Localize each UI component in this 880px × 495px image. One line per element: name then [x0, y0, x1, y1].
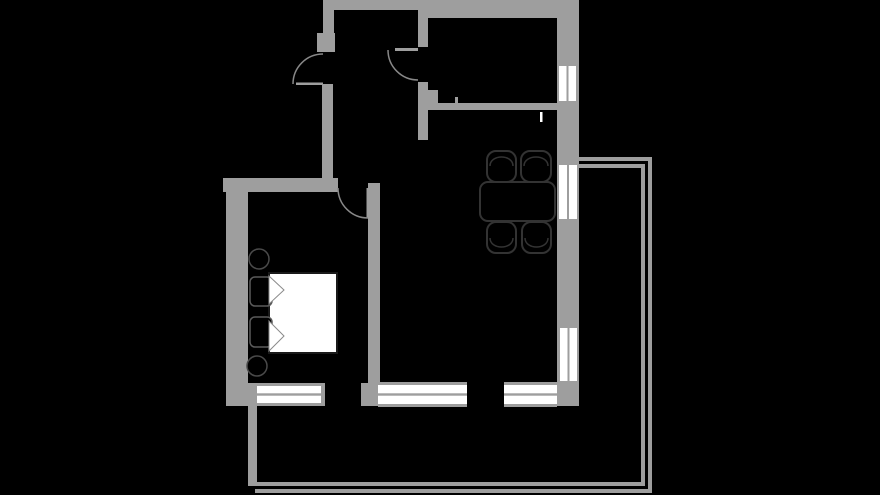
bottom-wall-left-corner	[226, 383, 257, 406]
balcony-rail-right-inner	[641, 164, 645, 486]
window-bottom-bedroom-frame-top	[257, 383, 321, 386]
window-bottom-living-1-mullion	[378, 393, 467, 395]
dining-chair-1	[487, 151, 516, 182]
top-wall-right-thick	[425, 8, 578, 18]
entry-door-leaf	[296, 83, 323, 86]
balcony-rail-top-outer	[579, 157, 652, 161]
kitchen-wall-tick	[455, 97, 458, 103]
balcony-rail-bottom-outer	[255, 489, 652, 493]
dining-chair-4	[522, 222, 551, 253]
window-bottom-living-2-mullion	[504, 393, 557, 395]
bedside-stool-2	[247, 356, 267, 376]
bedroom-door-leaf	[367, 188, 370, 218]
kitchen-wall-pier	[426, 90, 438, 110]
dining-table	[480, 182, 555, 221]
hall-left-wall	[322, 84, 333, 192]
window-right-middle-mullion	[567, 165, 569, 219]
bedroom-left-wall	[226, 178, 248, 406]
kitchen-partition-wall	[438, 103, 558, 110]
balcony-rail-right-outer	[648, 157, 652, 493]
bedside-stool-1	[249, 249, 269, 269]
entry-door-pier	[317, 33, 335, 52]
floorplan-canvas	[0, 0, 880, 495]
chair-seat	[521, 151, 551, 182]
dining-chair-2	[521, 151, 551, 182]
window-bottom-living-1-frame-top	[378, 382, 467, 385]
balcony-left-bar	[248, 406, 257, 484]
window-bottom-living-1	[378, 382, 467, 407]
window-right-bottom-mullion	[568, 328, 570, 381]
kitchen-door-tick	[540, 112, 543, 122]
window-bottom-living-2	[504, 382, 557, 407]
bedroom-right-wall	[368, 183, 380, 383]
window-bottom-living-2-frame-bottom	[504, 404, 557, 407]
chair-seat	[487, 151, 516, 182]
window-bottom-bedroom-frame-bottom	[257, 403, 321, 406]
hall-room-door-leaf	[395, 48, 418, 51]
bedroom-window-end-cap	[321, 383, 325, 406]
window-bottom-living-2-frame-top	[504, 382, 557, 385]
bottom-wall-pier	[361, 383, 380, 406]
window-right-top	[559, 66, 576, 101]
dining-chair-3	[487, 222, 516, 253]
window-bottom-bedroom	[257, 383, 321, 406]
balcony-rail-bottom-inner	[248, 482, 645, 486]
balcony-rail-top-inner	[579, 164, 645, 168]
window-right-bottom	[560, 328, 577, 381]
window-right-middle	[559, 165, 577, 219]
window-bottom-living-1-frame-bottom	[378, 404, 467, 407]
window-bottom-bedroom-mullion	[257, 393, 321, 395]
hall-room-wall-upper	[418, 9, 428, 47]
window-right-top-mullion	[567, 66, 569, 101]
floorplan-svg	[0, 0, 880, 495]
chair-seat	[522, 222, 551, 253]
chair-seat	[487, 222, 516, 253]
background	[0, 0, 880, 495]
